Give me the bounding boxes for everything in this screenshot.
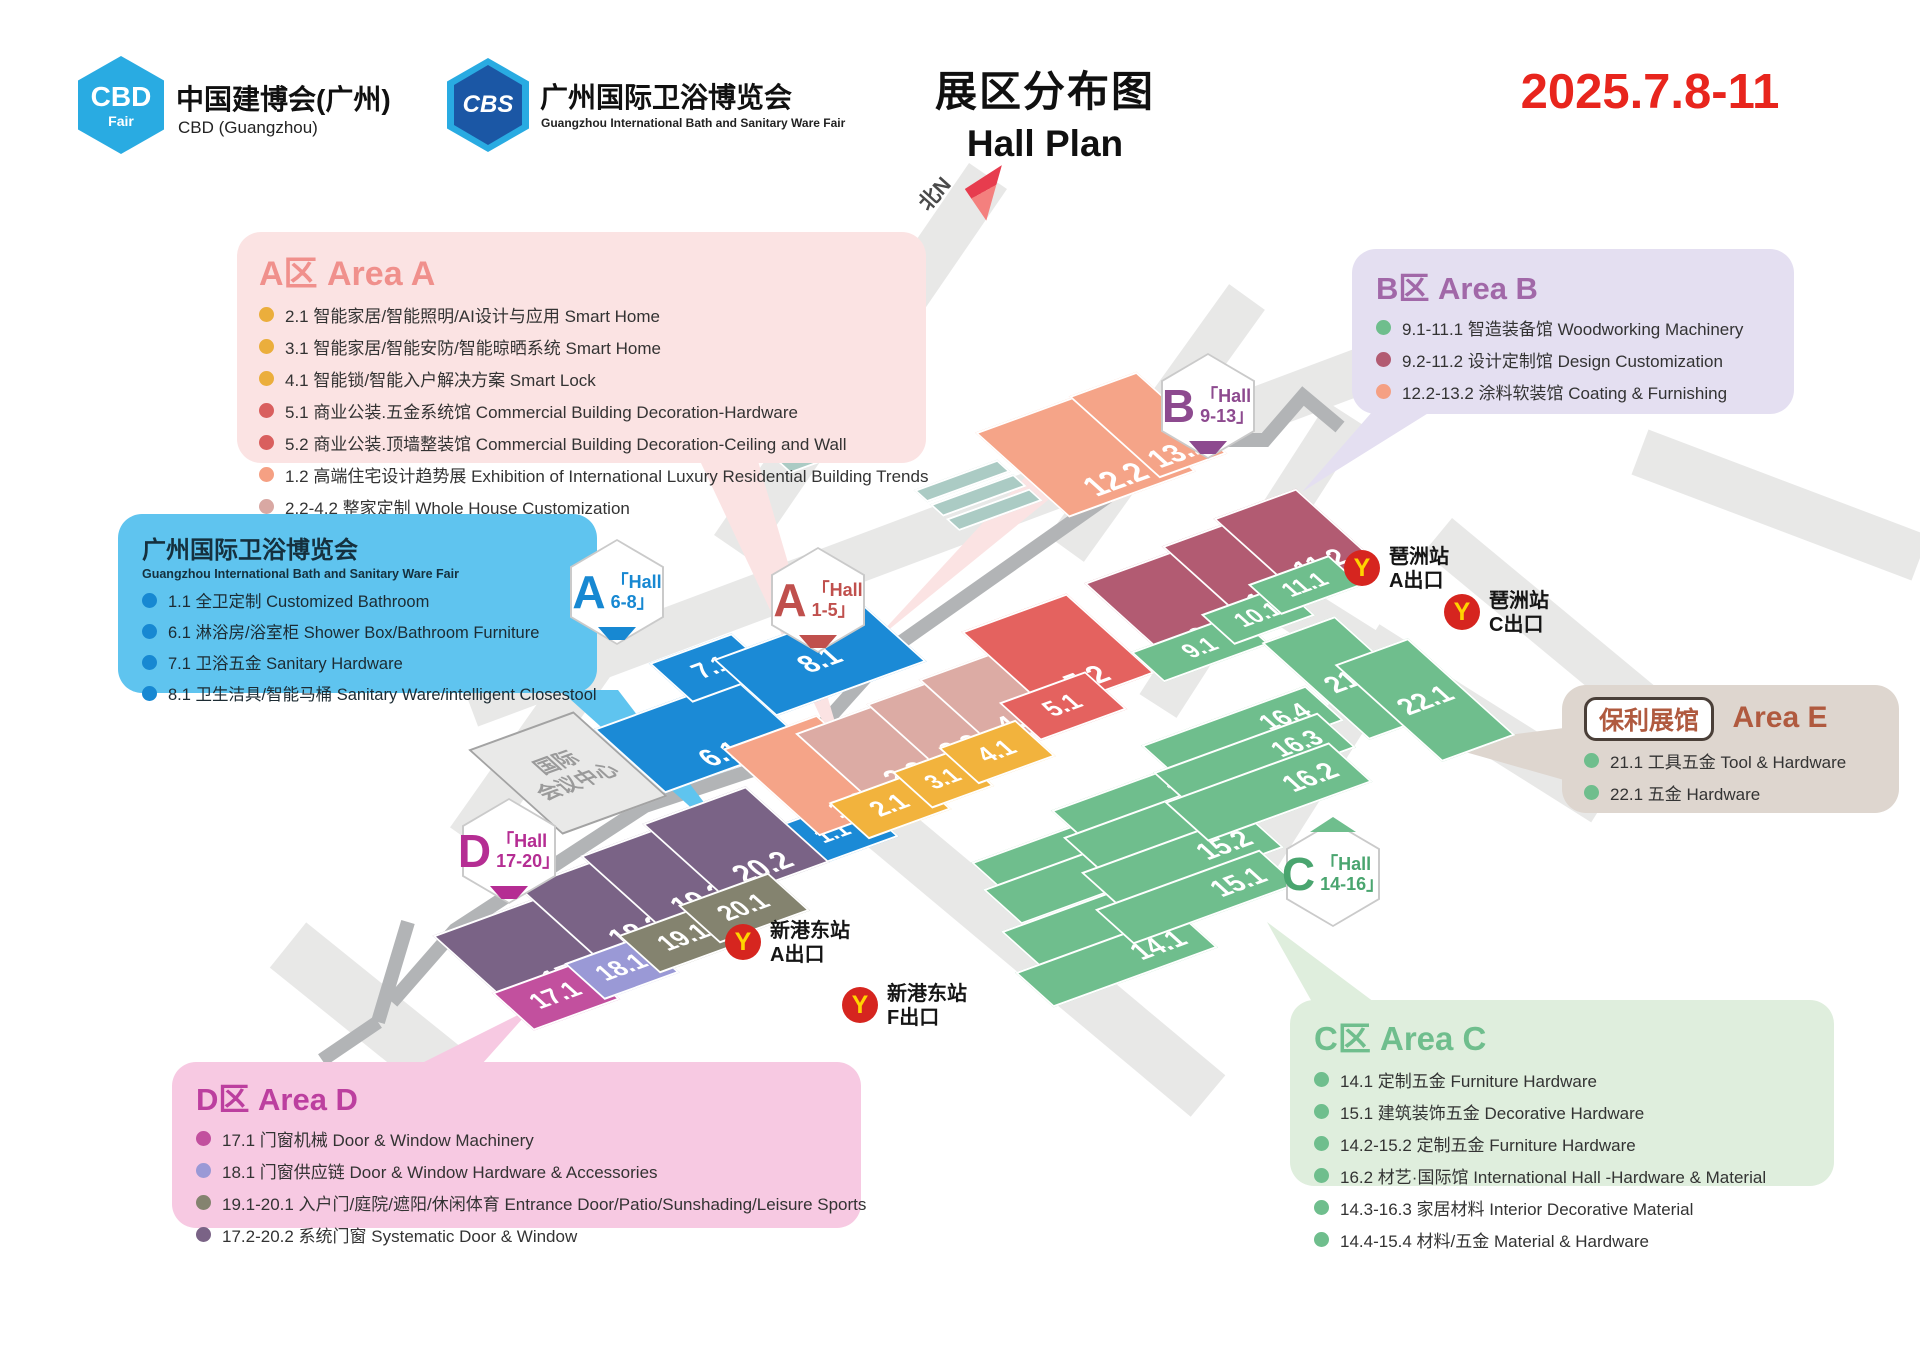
badge-letter: A [572, 569, 605, 615]
legend-dot-icon [1584, 753, 1599, 768]
poster-title-en: Hall Plan [880, 123, 1210, 165]
legend-item: 16.2 材艺·国际馆 International Hall -Hardware… [1314, 1163, 1834, 1188]
legend-item: 1.2 高端住宅设计趋势展 Exhibition of Internationa… [259, 462, 926, 487]
legend-item-label: 9.2-11.2 设计定制馆 Design Customization [1402, 347, 1723, 372]
legend-item-label: 2.1 智能家居/智能照明/AI设计与应用 Smart Home [285, 302, 660, 327]
legend-area-c-title: C区 Area C [1314, 1012, 1834, 1060]
poster-title-cn: 展区分布图 [880, 58, 1210, 119]
hall-plan-poster: 北N 国际 会议中心 6.17.18.11.11.22.23.24.25.22.… [0, 0, 1920, 1358]
legend-item-label: 21.1 工具五金 Tool & Hardware [1610, 748, 1846, 773]
hall-badge-A-1-5: A「Hall1-5」 [771, 547, 865, 653]
metro-logo-icon: Y [725, 924, 761, 960]
legend-dot-icon [196, 1195, 211, 1210]
hall-label: 2.1 [863, 790, 918, 823]
legend-item: 9.1-11.1 智造装备馆 Woodworking Machinery [1376, 315, 1794, 340]
legend-item-label: 17.1 门窗机械 Door & Window Machinery [222, 1126, 534, 1151]
hall-label: 22.1 [1388, 680, 1462, 721]
legend-dot-icon [142, 624, 157, 639]
legend-item-label: 8.1 卫生洁具/智能马桶 Sanitary Ware/intelligent … [168, 681, 597, 705]
legend-item: 1.1 全卫定制 Customized Bathroom [142, 588, 597, 612]
metro-logo-icon: Y [1344, 550, 1380, 586]
legend-area-e-title: Area E [1732, 701, 1827, 734]
metro-exit-label: 琶洲站A出口 [1389, 545, 1449, 593]
legend-dot-icon [1376, 352, 1391, 367]
legend-bath-subtitle: Guangzhou International Bath and Sanitar… [142, 567, 597, 581]
legend-dot-icon [196, 1163, 211, 1178]
legend-item: 3.1 智能家居/智能安防/智能晾晒系统 Smart Home [259, 334, 926, 359]
metro-logo-icon: Y [1444, 594, 1480, 630]
legend-item: 14.3-16.3 家居材料 Interior Decorative Mater… [1314, 1195, 1834, 1220]
badge-hall-range: 「Hall17-20」 [496, 831, 560, 871]
legend-item: 17.2-20.2 系统门窗 Systematic Door & Window [196, 1222, 861, 1247]
badge-hall-range: 「Hall6-8」 [611, 572, 662, 612]
legend-item: 12.2-13.2 涂料软装馆 Coating & Furnishing [1376, 379, 1794, 404]
metro-exit-label: 新港东站A出口 [770, 919, 850, 967]
legend-area-d: D区 Area D 17.1 门窗机械 Door & Window Machin… [172, 1062, 861, 1228]
legend-item-label: 16.2 材艺·国际馆 International Hall -Hardware… [1340, 1163, 1766, 1188]
badge-letter: B [1162, 383, 1195, 429]
legend-item: 2.1 智能家居/智能照明/AI设计与应用 Smart Home [259, 302, 926, 327]
legend-dot-icon [196, 1131, 211, 1146]
cbd-fair-subtitle: CBD (Guangzhou) [178, 118, 318, 138]
metro-exit-A: Y琶洲站A出口 [1344, 550, 1380, 586]
legend-item: 14.1 定制五金 Furniture Hardware [1314, 1067, 1834, 1092]
area-e-badge: 保利展馆 [1584, 697, 1714, 741]
hall-badge-D-17-20: D「Hall17-20」 [462, 798, 556, 904]
legend-dot-icon [1376, 320, 1391, 335]
hall-label: 15.1 [1201, 861, 1275, 902]
legend-area-b-title: B区 Area B [1376, 263, 1794, 308]
legend-item-label: 18.1 门窗供应链 Door & Window Hardware & Acce… [222, 1158, 658, 1183]
legend-item: 21.1 工具五金 Tool & Hardware [1584, 748, 1899, 773]
metro-logo-icon: Y [842, 987, 878, 1023]
hall-label: 9.1 [1175, 633, 1226, 663]
metro-exit-label: 琶洲站C出口 [1489, 589, 1549, 637]
legend-item: 5.1 商业公装.五金系统馆 Commercial Building Decor… [259, 398, 926, 423]
legend-dot-icon [1314, 1072, 1329, 1087]
legend-area-e: 保利展馆 Area E 21.1 工具五金 Tool & Hardware22.… [1562, 685, 1899, 813]
hall-label: 20.1 [710, 889, 777, 926]
badge-letter: A [773, 577, 806, 623]
badge-hall-range: 「Hall9-13」 [1200, 386, 1254, 426]
hall-label: 11.1 [1275, 568, 1336, 602]
legend-area-c: C区 Area C 14.1 定制五金 Furniture Hardware15… [1290, 1000, 1834, 1186]
metro-exit-C: Y琶洲站C出口 [1444, 594, 1480, 630]
legend-item: 9.2-11.2 设计定制馆 Design Customization [1376, 347, 1794, 372]
legend-item-label: 7.1 卫浴五金 Sanitary Hardware [168, 650, 403, 674]
legend-item-label: 14.4-15.4 材料/五金 Material & Hardware [1340, 1227, 1649, 1252]
hall-badge-C-14-16: C「Hall14-16」 [1286, 821, 1380, 927]
legend-item: 6.1 淋浴房/浴室柜 Shower Box/Bathroom Furnitur… [142, 619, 597, 643]
fair-dates: 2025.7.8-11 [1470, 64, 1830, 120]
legend-dot-icon [1314, 1232, 1329, 1247]
legend-dot-icon [259, 499, 274, 514]
legend-item: 14.2-15.2 定制五金 Furniture Hardware [1314, 1131, 1834, 1156]
legend-item-label: 15.1 建筑装饰五金 Decorative Hardware [1340, 1099, 1644, 1124]
poster-title: 展区分布图 Hall Plan [880, 58, 1210, 165]
legend-item-label: 6.1 淋浴房/浴室柜 Shower Box/Bathroom Furnitur… [168, 619, 539, 643]
legend-dot-icon [142, 655, 157, 670]
legend-item: 5.2 商业公装.顶墙整装馆 Commercial Building Decor… [259, 430, 926, 455]
hall-label: 16.2 [1273, 756, 1347, 797]
cbs-fair-subtitle: Guangzhou International Bath and Sanitar… [541, 116, 845, 130]
legend-area-a: A区 Area A 2.1 智能家居/智能照明/AI设计与应用 Smart Ho… [237, 232, 926, 463]
legend-item: 15.1 建筑装饰五金 Decorative Hardware [1314, 1099, 1834, 1124]
legend-item: 7.1 卫浴五金 Sanitary Hardware [142, 650, 597, 674]
metro-exit-label: 新港东站F出口 [887, 982, 967, 1030]
legend-item-label: 1.2 高端住宅设计趋势展 Exhibition of Internationa… [285, 462, 928, 487]
legend-dot-icon [142, 686, 157, 701]
legend-dot-icon [1314, 1136, 1329, 1151]
legend-dot-icon [196, 1227, 211, 1242]
legend-bath-fair: 广州国际卫浴博览会 Guangzhou International Bath a… [118, 514, 597, 693]
legend-dot-icon [259, 403, 274, 418]
legend-item-label: 19.1-20.1 入户门/庭院/遮阳/休闲体育 Entrance Door/P… [222, 1190, 866, 1215]
legend-dot-icon [1314, 1168, 1329, 1183]
legend-bath-title: 广州国际卫浴博览会 [142, 530, 597, 565]
cbs-logo-text: CBS [463, 91, 514, 119]
legend-item: 19.1-20.1 入户门/庭院/遮阳/休闲体育 Entrance Door/P… [196, 1190, 861, 1215]
legend-item-label: 4.1 智能锁/智能入户解决方案 Smart Lock [285, 366, 596, 391]
legend-item-label: 17.2-20.2 系统门窗 Systematic Door & Window [222, 1222, 577, 1247]
legend-item-label: 9.1-11.1 智造装备馆 Woodworking Machinery [1402, 315, 1743, 340]
legend-item: 14.4-15.4 材料/五金 Material & Hardware [1314, 1227, 1834, 1252]
legend-dot-icon [259, 339, 274, 354]
legend-dot-icon [259, 371, 274, 386]
legend-dot-icon [142, 593, 157, 608]
legend-dot-icon [259, 307, 274, 322]
hall-label: 17.1 [522, 977, 589, 1014]
legend-item-label: 1.1 全卫定制 Customized Bathroom [168, 588, 429, 612]
hall-badge-A-6-8: A「Hall6-8」 [570, 539, 664, 645]
legend-item: 17.1 门窗机械 Door & Window Machinery [196, 1126, 861, 1151]
cbd-logo-text: CBD [91, 81, 152, 113]
legend-dot-icon [1314, 1200, 1329, 1215]
badge-letter: C [1282, 851, 1315, 897]
legend-dot-icon [259, 467, 274, 482]
hall-badge-B-9-13: B「Hall9-13」 [1161, 353, 1255, 459]
legend-item-label: 3.1 智能家居/智能安防/智能晾晒系统 Smart Home [285, 334, 661, 359]
legend-dot-icon [259, 435, 274, 450]
legend-item-label: 12.2-13.2 涂料软装馆 Coating & Furnishing [1402, 379, 1727, 404]
legend-item-label: 5.2 商业公装.顶墙整装馆 Commercial Building Decor… [285, 430, 847, 455]
legend-item-label: 14.2-15.2 定制五金 Furniture Hardware [1340, 1131, 1636, 1156]
metro-exit-A: Y新港东站A出口 [725, 924, 761, 960]
legend-dot-icon [1584, 785, 1599, 800]
legend-item: 18.1 门窗供应链 Door & Window Hardware & Acce… [196, 1158, 861, 1183]
hall-label: 5.1 [1036, 690, 1091, 723]
badge-letter: D [458, 828, 491, 874]
legend-item-label: 14.3-16.3 家居材料 Interior Decorative Mater… [1340, 1195, 1693, 1220]
badge-hall-range: 「Hall1-5」 [812, 580, 863, 620]
legend-item: 8.1 卫生洁具/智能马桶 Sanitary Ware/intelligent … [142, 681, 597, 705]
cbs-fair-title: 广州国际卫浴博览会 [540, 76, 792, 116]
metro-exit-F: Y新港东站F出口 [842, 987, 878, 1023]
legend-dot-icon [1376, 384, 1391, 399]
legend-item: 4.1 智能锁/智能入户解决方案 Smart Lock [259, 366, 926, 391]
cbd-logo-fair-text: Fair [108, 113, 134, 129]
legend-item-label: 22.1 五金 Hardware [1610, 780, 1760, 805]
legend-item-label: 14.1 定制五金 Furniture Hardware [1340, 1067, 1597, 1092]
cbd-fair-title: 中国建博会(广州) [176, 78, 391, 118]
badge-hall-range: 「Hall14-16」 [1320, 854, 1384, 894]
hall-label: 4.1 [970, 736, 1025, 769]
legend-area-a-title: A区 Area A [259, 246, 926, 295]
legend-area-b: B区 Area B 9.1-11.1 智造装备馆 Woodworking Mac… [1352, 249, 1794, 414]
legend-item-label: 5.1 商业公装.五金系统馆 Commercial Building Decor… [285, 398, 798, 423]
cbs-logo-inner: CBS [454, 65, 522, 145]
legend-dot-icon [1314, 1104, 1329, 1119]
legend-area-d-title: D区 Area D [196, 1074, 861, 1119]
legend-item: 22.1 五金 Hardware [1584, 780, 1899, 805]
